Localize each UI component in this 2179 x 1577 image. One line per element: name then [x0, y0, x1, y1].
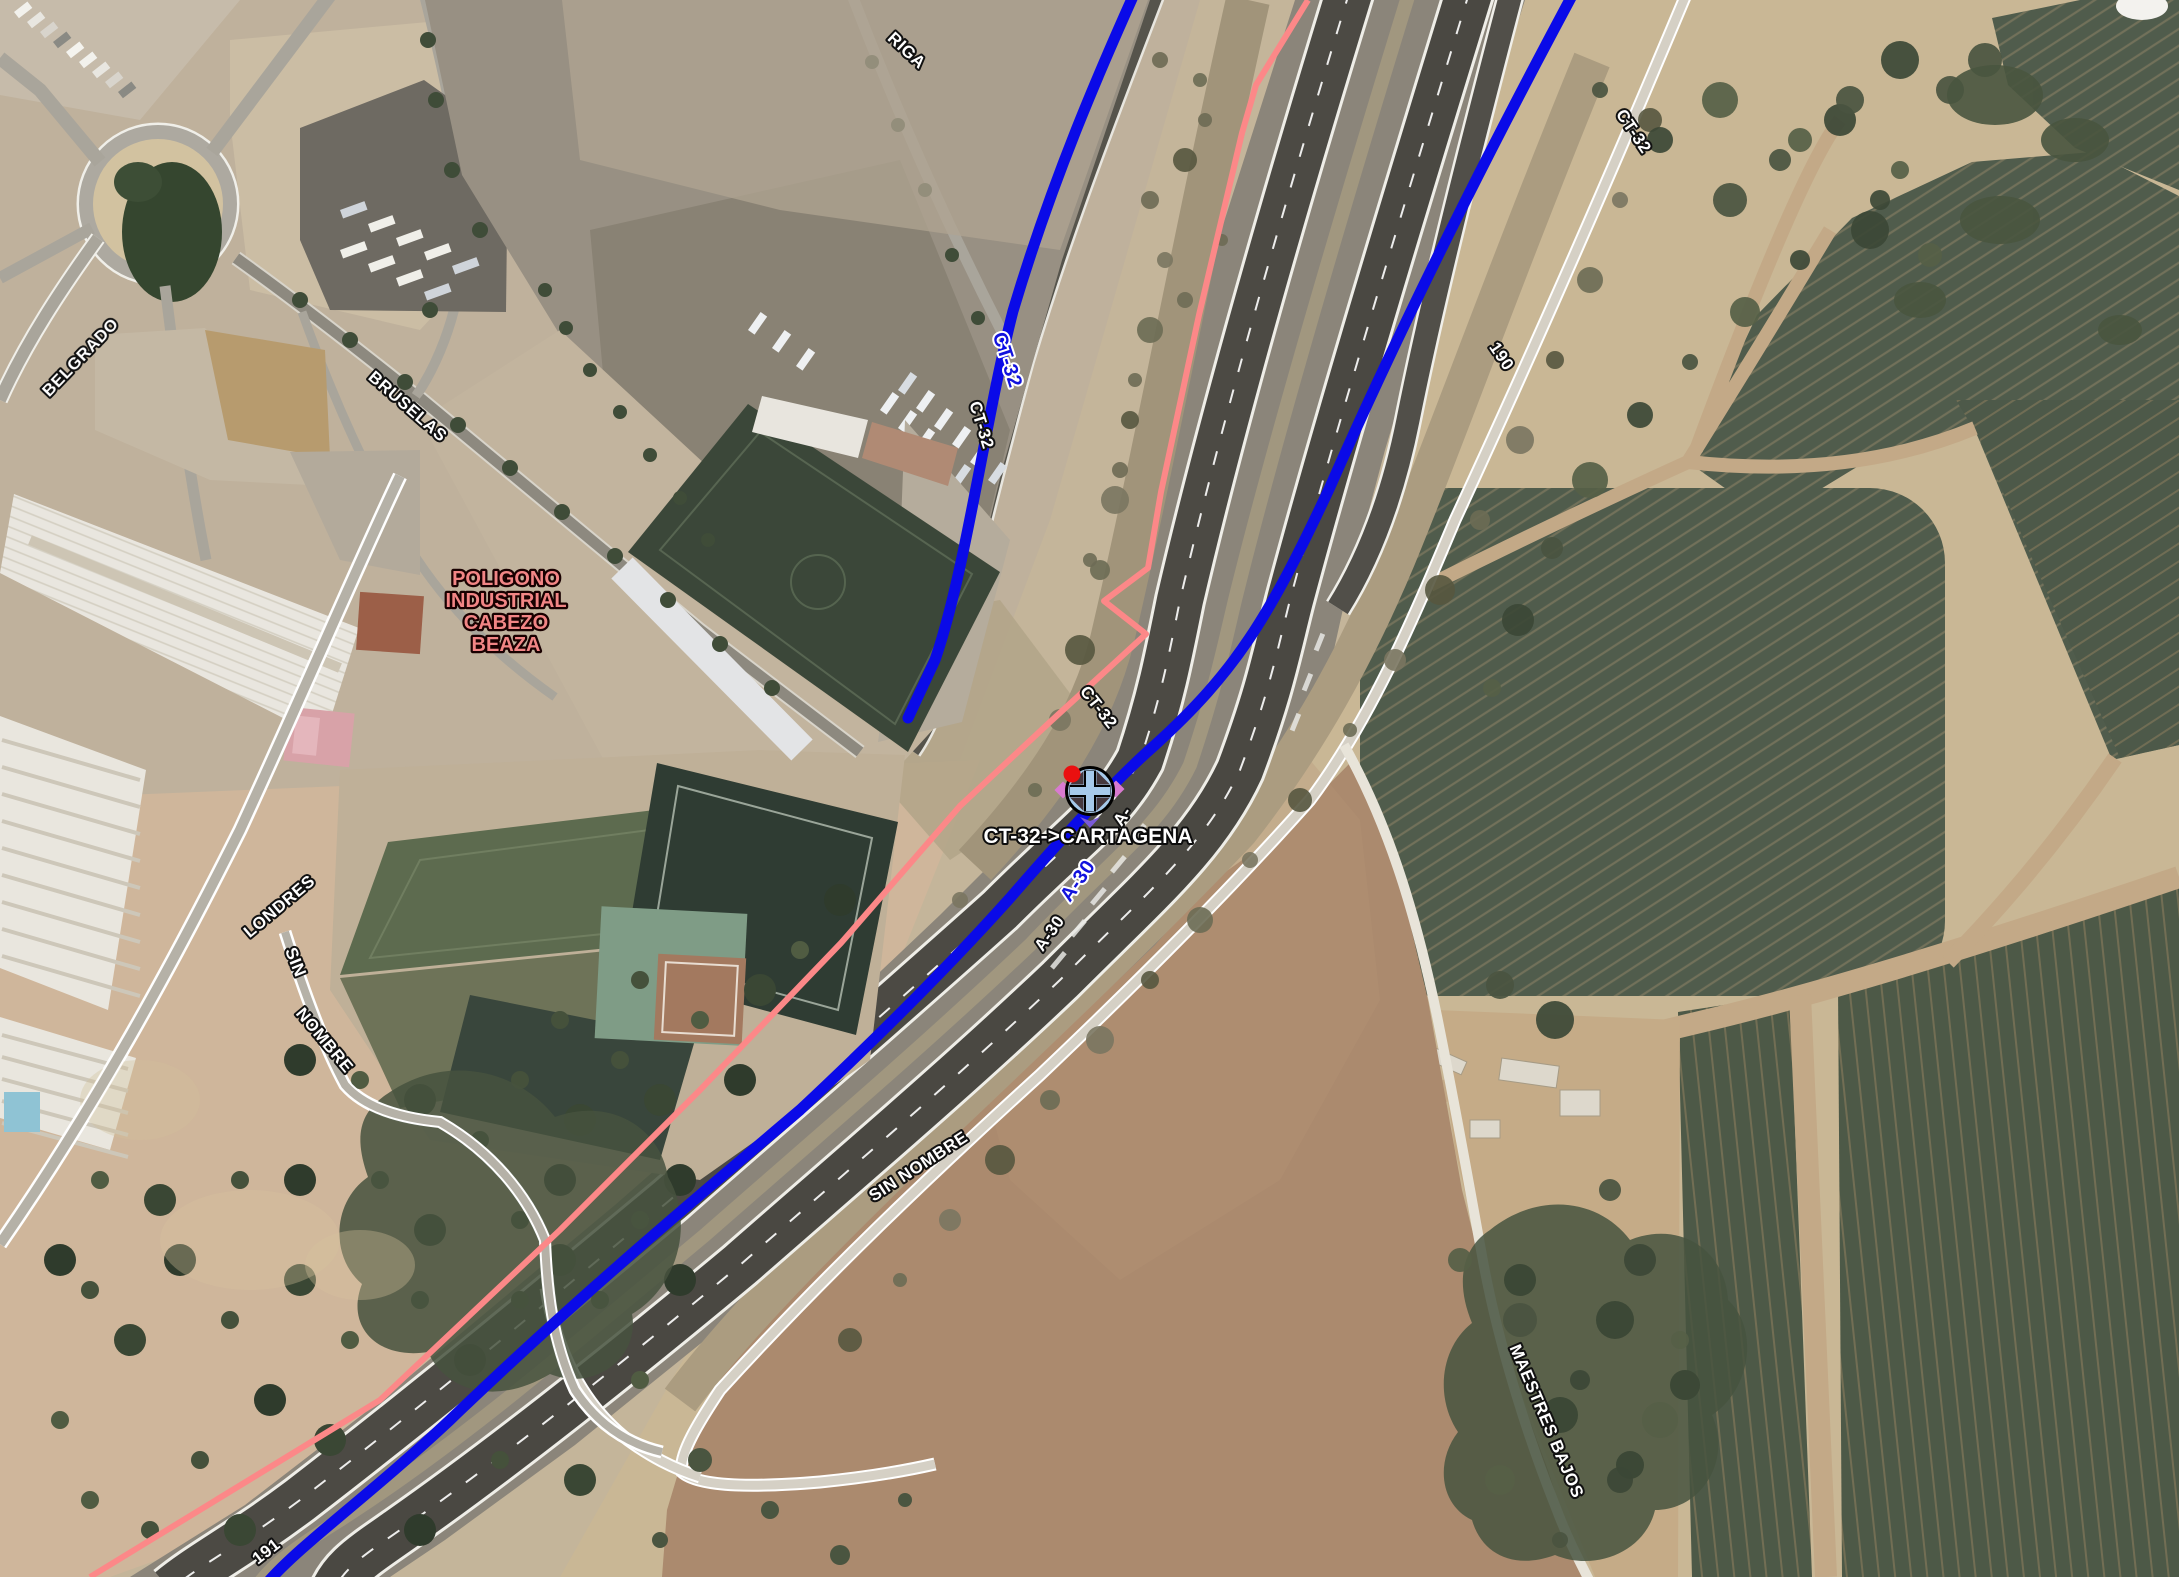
svg-text:CT-32->CARTAGENA: CT-32->CARTAGENA: [983, 825, 1192, 848]
svg-text:BEAZA: BEAZA: [472, 634, 541, 656]
svg-text:INDUSTRIAL: INDUSTRIAL: [445, 590, 566, 612]
svg-text:CABEZO: CABEZO: [464, 612, 548, 634]
svg-text:POLIGONO: POLIGONO: [452, 568, 560, 590]
